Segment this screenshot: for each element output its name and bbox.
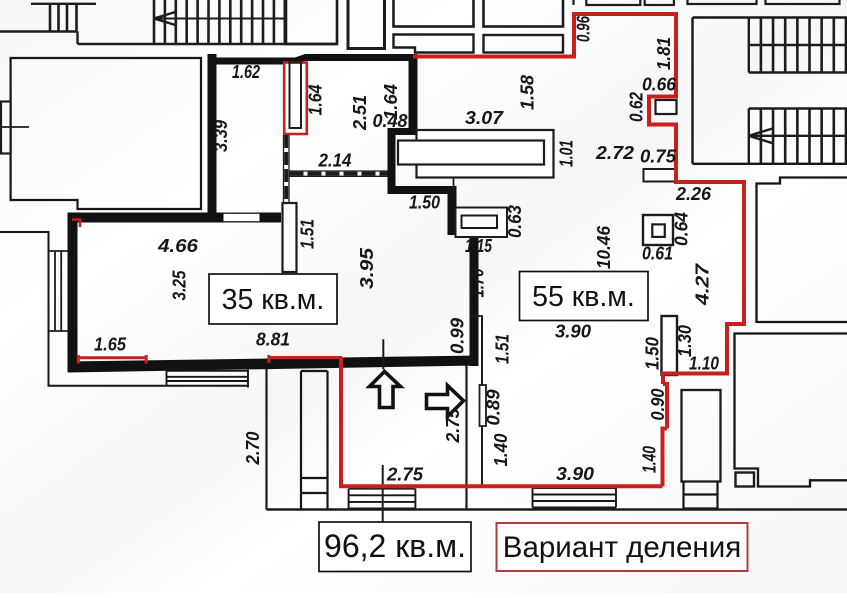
svg-text:1.30: 1.30 bbox=[675, 325, 695, 357]
svg-text:2.14: 2.14 bbox=[318, 151, 352, 171]
svg-text:3.95: 3.95 bbox=[357, 247, 377, 289]
svg-text:3.90: 3.90 bbox=[556, 464, 594, 484]
svg-text:3.90: 3.90 bbox=[555, 322, 591, 342]
svg-text:96,2 кв.м.: 96,2 кв.м. bbox=[324, 528, 466, 564]
svg-text:4.27: 4.27 bbox=[693, 263, 713, 306]
svg-text:2.26: 2.26 bbox=[675, 184, 712, 204]
svg-text:0.63: 0.63 bbox=[505, 205, 525, 238]
svg-text:2.75: 2.75 bbox=[386, 465, 424, 485]
svg-text:35 кв.м.: 35 кв.м. bbox=[222, 284, 325, 316]
svg-text:1.58: 1.58 bbox=[518, 75, 538, 110]
svg-text:0.75: 0.75 bbox=[640, 147, 677, 167]
svg-text:2.51: 2.51 bbox=[350, 95, 370, 131]
svg-text:8.81: 8.81 bbox=[256, 330, 290, 350]
svg-text:1.64: 1.64 bbox=[306, 85, 326, 116]
svg-text:1.15: 1.15 bbox=[465, 236, 493, 256]
svg-text:1.70: 1.70 bbox=[468, 269, 488, 298]
svg-text:1.51: 1.51 bbox=[493, 334, 513, 364]
svg-text:0.66: 0.66 bbox=[642, 75, 677, 95]
svg-text:55 кв.м.: 55 кв.м. bbox=[532, 281, 635, 313]
svg-text:0.89: 0.89 bbox=[484, 390, 504, 426]
svg-text:1.10: 1.10 bbox=[689, 354, 719, 374]
svg-text:1.40: 1.40 bbox=[640, 446, 660, 473]
svg-text:1.81: 1.81 bbox=[654, 37, 674, 70]
svg-text:0.64: 0.64 bbox=[672, 212, 692, 246]
svg-text:2.70: 2.70 bbox=[243, 432, 263, 466]
svg-text:0.61: 0.61 bbox=[642, 244, 673, 264]
svg-text:0.62: 0.62 bbox=[627, 92, 647, 122]
svg-text:1.65: 1.65 bbox=[94, 335, 127, 355]
svg-text:1.50: 1.50 bbox=[643, 337, 663, 370]
svg-text:4.66: 4.66 bbox=[157, 236, 199, 256]
svg-text:3.39: 3.39 bbox=[211, 120, 231, 152]
svg-text:0.48: 0.48 bbox=[373, 111, 408, 131]
svg-text:1.50: 1.50 bbox=[409, 193, 440, 213]
svg-text:2.75: 2.75 bbox=[443, 408, 463, 444]
svg-text:0.99: 0.99 bbox=[448, 318, 468, 354]
svg-text:1.01: 1.01 bbox=[557, 140, 577, 167]
svg-text:10.46: 10.46 bbox=[594, 225, 614, 269]
svg-text:Вариант деления: Вариант деления bbox=[503, 531, 741, 564]
svg-text:0.96: 0.96 bbox=[574, 15, 594, 42]
svg-text:3.25: 3.25 bbox=[170, 270, 190, 301]
svg-text:3.07: 3.07 bbox=[465, 108, 504, 128]
svg-text:2.72: 2.72 bbox=[595, 143, 634, 163]
svg-text:0.90: 0.90 bbox=[648, 389, 668, 421]
svg-text:1.51: 1.51 bbox=[298, 219, 318, 249]
svg-text:1.62: 1.62 bbox=[232, 62, 260, 82]
svg-text:1.40: 1.40 bbox=[491, 434, 511, 467]
